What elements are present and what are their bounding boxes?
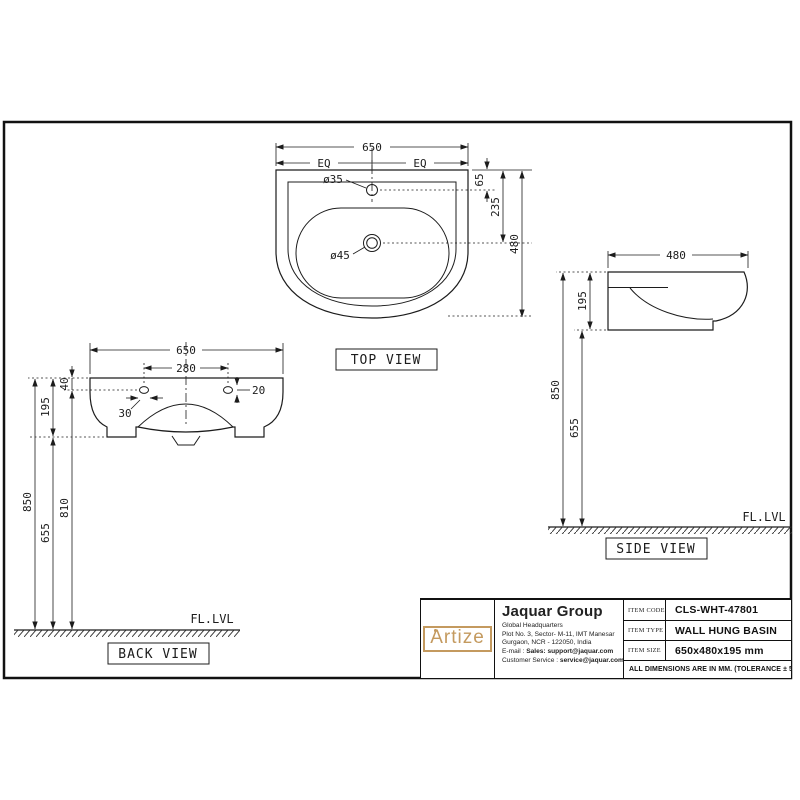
- artize-logo-text: Artize: [430, 627, 485, 648]
- logo-cell: Artize: [421, 600, 494, 678]
- dim-480-top: 480: [508, 234, 521, 254]
- mounting-slot-right: [224, 387, 233, 394]
- email-label: E-mail :: [502, 648, 526, 655]
- dim-30: 30: [118, 407, 131, 420]
- dim-drain-dia: ø45: [330, 249, 350, 262]
- item-type-value: WALL HUNG BASIN: [665, 620, 791, 640]
- artize-logo: Artize: [423, 626, 492, 652]
- top-view: [276, 143, 532, 318]
- basin-outline-side: [608, 272, 747, 330]
- back-view-labels: 650 280 30 20 40 195 850 810 655 FL.LVL …: [21, 344, 265, 664]
- dim-195-back: 195: [39, 397, 52, 417]
- bowl-profile-side: [630, 288, 713, 319]
- technical-drawing-page: 650 EQ EQ ø35 ø45 65 235 480 TOP VIEW: [0, 0, 800, 800]
- top-view-title: TOP VIEW: [351, 353, 422, 368]
- side-view-labels: 480 195 850 655 FL.LVL SIDE VIEW: [549, 249, 786, 559]
- company-name: Jaquar Group: [502, 603, 603, 620]
- dim-480-side: 480: [666, 249, 686, 262]
- dim-850-back: 850: [21, 492, 34, 512]
- dim-eq-right: EQ: [413, 157, 426, 170]
- dim-810: 810: [58, 498, 71, 518]
- logo-dot: [434, 629, 437, 632]
- drawing-frame: [4, 122, 791, 678]
- dim-65: 65: [473, 173, 486, 186]
- dim-850-side: 850: [549, 380, 562, 400]
- side-view-title: SIDE VIEW: [616, 542, 695, 557]
- email-line: E-mail : Sales: support@jaquar.com: [502, 648, 613, 657]
- engineering-drawing-svg: 650 EQ EQ ø35 ø45 65 235 480 TOP VIEW: [0, 0, 800, 800]
- mounting-slot-left: [140, 387, 149, 394]
- dim-20: 20: [252, 384, 265, 397]
- dim-655-back: 655: [39, 523, 52, 543]
- top-view-labels: 650 EQ EQ ø35 ø45 65 235 480 TOP VIEW: [317, 141, 521, 370]
- item-code-label: ITEM CODE: [623, 600, 665, 620]
- item-type-label: ITEM TYPE: [623, 620, 665, 640]
- back-view: [14, 342, 283, 637]
- service-line: Customer Service : service@jaquar.com: [502, 657, 623, 666]
- dim-280: 280: [176, 362, 196, 375]
- item-size-value: 650x480x195 mm: [665, 640, 791, 660]
- dim-40: 40: [58, 377, 71, 390]
- company-cell: Jaquar Group Global Headquarters Plot No…: [494, 600, 623, 678]
- address-line-3: Gurgaon, NCR - 122050, India: [502, 639, 591, 648]
- title-block: Artize Jaquar Group Global Headquarters …: [420, 598, 791, 678]
- service-label: Customer Service :: [502, 657, 560, 664]
- drain-hole-inner: [367, 238, 378, 249]
- drain-back: [172, 436, 200, 445]
- dim-eq-left: EQ: [317, 157, 330, 170]
- floor-level-label-side: FL.LVL: [742, 510, 785, 524]
- address-line-2: Plot No. 3, Sector- M-11, IMT Manesar: [502, 631, 615, 640]
- service-value: service@jaquar.com: [560, 657, 623, 664]
- item-code-value: CLS-WHT-47801: [665, 600, 791, 620]
- back-view-title: BACK VIEW: [118, 647, 197, 662]
- basin-outline-top: [276, 170, 468, 318]
- dim-195-side: 195: [576, 291, 589, 311]
- dim-235: 235: [489, 197, 502, 217]
- tolerance-note: ALL DIMENSIONS ARE IN MM. (TOLERANCE ± 5…: [623, 660, 791, 678]
- floor-level-label-back: FL.LVL: [190, 612, 233, 626]
- dim-tap-dia: ø35: [323, 173, 343, 186]
- address-line-1: Global Headquarters: [502, 622, 563, 631]
- bowl-underside-arch: [138, 404, 233, 427]
- email-value: Sales: support@jaquar.com: [526, 648, 613, 655]
- dim-650-top: 650: [362, 141, 382, 154]
- dim-650-back: 650: [176, 344, 196, 357]
- basin-bowl-top: [296, 208, 449, 298]
- dim-655-side: 655: [568, 418, 581, 438]
- drain-hole-outer: [364, 235, 381, 252]
- item-size-label: ITEM SIZE: [623, 640, 665, 660]
